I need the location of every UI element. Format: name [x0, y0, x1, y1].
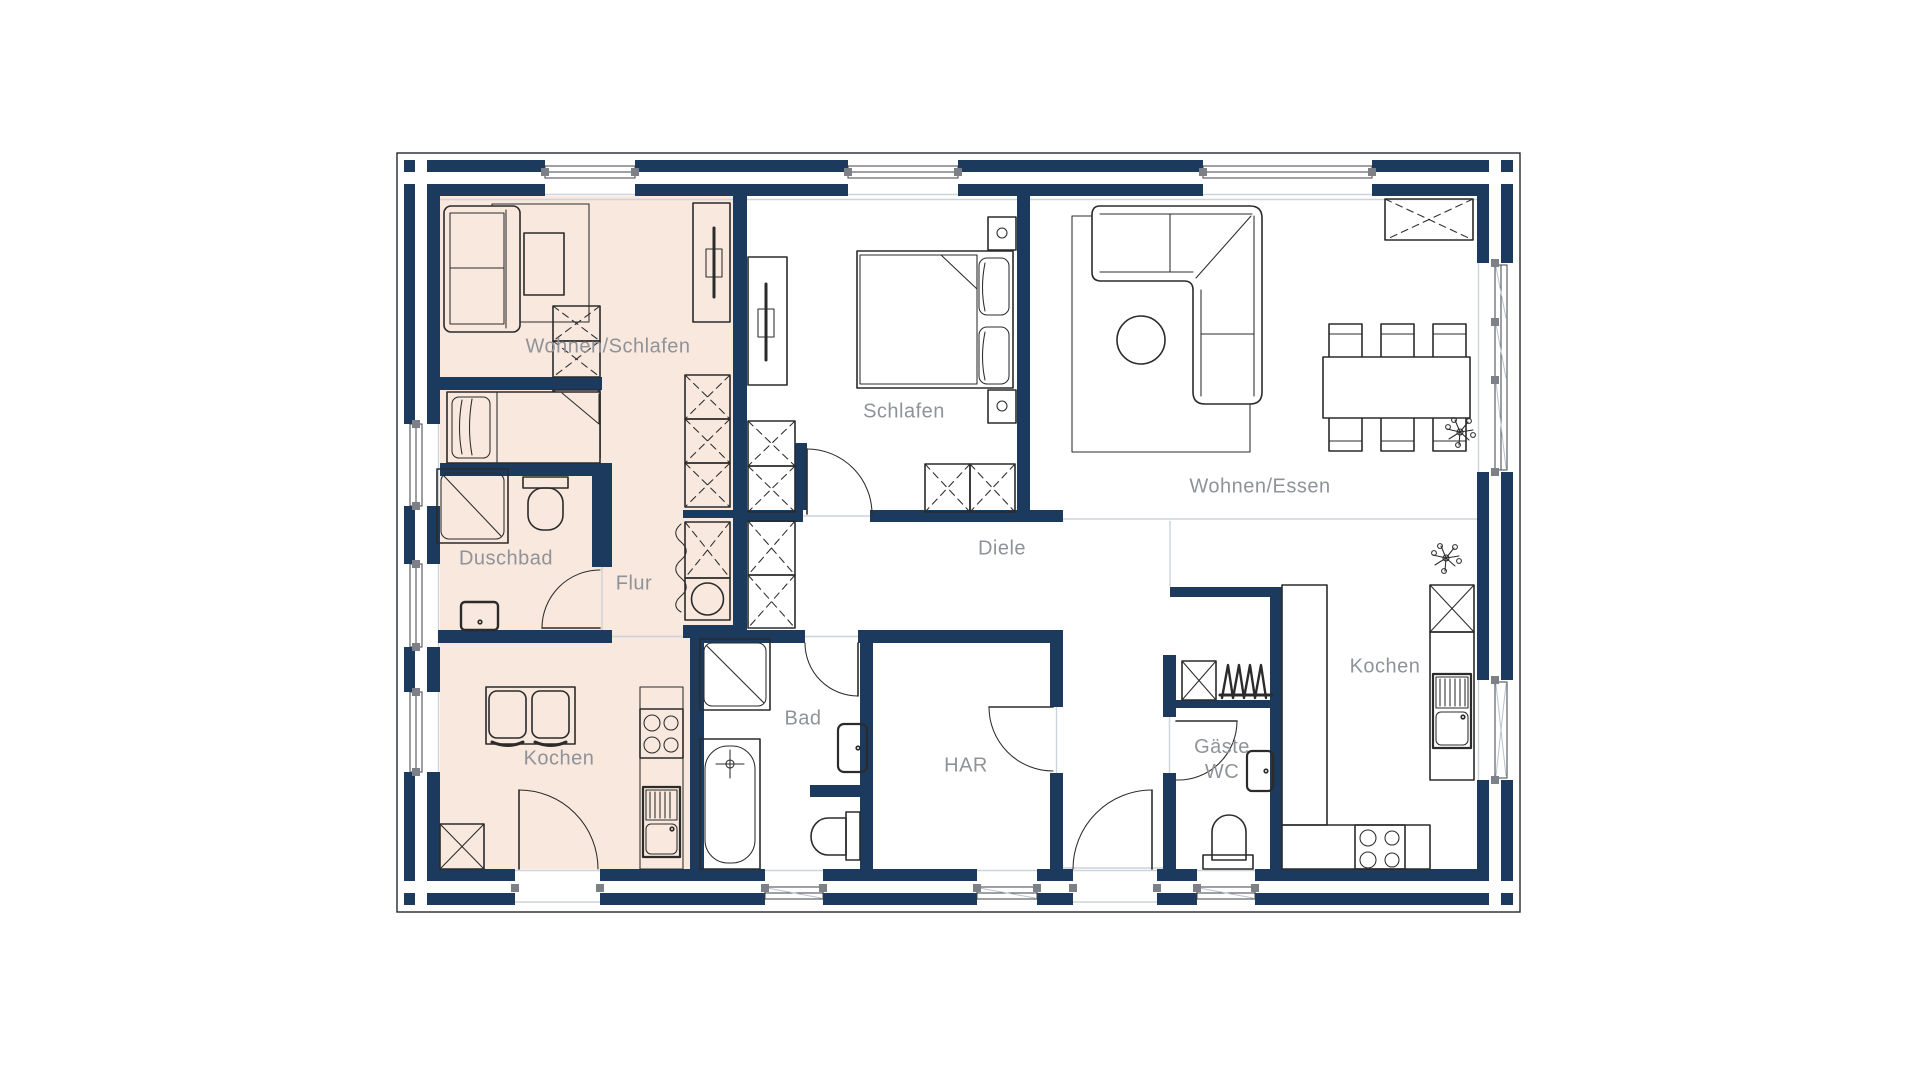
chair [1329, 417, 1362, 451]
room-label-diele: Diele [978, 537, 1026, 562]
kitchen-counter [1430, 632, 1474, 780]
bathtub [700, 739, 760, 869]
wardrobe [1182, 661, 1216, 700]
coffee-table [524, 233, 564, 295]
kitchen-peninsula [1282, 585, 1327, 825]
schlafen-door [807, 449, 872, 514]
main-kitchen [1282, 544, 1474, 869]
coat-rack-icon [1222, 665, 1266, 698]
wardrobe [1385, 199, 1473, 240]
chair [1433, 417, 1466, 451]
room-label-wohnen-schlafen: Wohnen/Schlafen [525, 335, 690, 360]
coffee-table [1117, 316, 1165, 364]
room-label-gaeste-wc: Gäste WC [1194, 735, 1250, 785]
plant-icon [1446, 418, 1476, 448]
living-dining [1072, 206, 1475, 452]
flat-entrance-opening [511, 869, 604, 905]
bad-door [805, 643, 858, 696]
corner-sofa [1092, 206, 1262, 404]
wardrobe [748, 466, 795, 512]
main-entrance-opening [1069, 869, 1161, 905]
floorplan-page: Wohnen/Schlafen Schlafen Wohnen/Essen Di… [0, 0, 1920, 1080]
shower [700, 639, 770, 710]
wardrobe [1430, 585, 1474, 632]
har-door [989, 707, 1053, 771]
window [1477, 259, 1513, 476]
room-label-kochen-main: Kochen [1350, 655, 1421, 680]
sofa [444, 206, 520, 332]
window [404, 560, 440, 651]
room-label-har: HAR [944, 754, 988, 779]
bedroom [748, 217, 1016, 423]
room-label-flur: Flur [616, 572, 652, 597]
window [844, 160, 962, 196]
wardrobe [970, 464, 1015, 512]
nightstand [988, 390, 1016, 423]
bathroom [700, 639, 867, 869]
dining-set [1323, 324, 1470, 451]
chair [1381, 324, 1414, 358]
room-label-wohnen-essen: Wohnen/Essen [1189, 475, 1330, 500]
wardrobe [748, 575, 795, 628]
room-label-bad: Bad [784, 707, 821, 732]
wardrobe [748, 521, 795, 575]
window [404, 688, 440, 776]
washbasin [1247, 751, 1273, 791]
dining-table [1323, 357, 1470, 418]
single-bed [447, 392, 600, 463]
floorplan-canvas [0, 0, 1920, 1080]
window [973, 869, 1041, 905]
kitchen-counter [1282, 825, 1430, 869]
window [761, 869, 827, 905]
toilet [1203, 815, 1253, 869]
main-entrance-door [1073, 790, 1152, 869]
tv-sideboard [748, 257, 787, 385]
toilet [811, 812, 860, 860]
chair [1433, 324, 1466, 358]
window [404, 420, 440, 510]
chair [1329, 324, 1362, 358]
room-label-duschbad: Duschbad [459, 547, 553, 572]
nightstand [988, 217, 1016, 250]
window [1199, 160, 1376, 196]
stove [1355, 825, 1405, 869]
wardrobe [748, 421, 795, 466]
double-bed [857, 251, 1013, 388]
room-label-kochen-flat: Kochen [524, 747, 595, 772]
chair [1381, 417, 1414, 451]
kitchen-sink [1433, 674, 1471, 748]
room-label-gaeste-wc-line1: Gäste [1194, 736, 1250, 758]
window [541, 160, 639, 196]
room-label-gaeste-wc-line2: WC [1205, 761, 1239, 783]
plant-icon [1432, 544, 1462, 574]
terrace-door [1477, 676, 1513, 784]
room-label-schlafen: Schlafen [863, 400, 945, 425]
window [1193, 869, 1259, 905]
wardrobe [925, 464, 970, 512]
